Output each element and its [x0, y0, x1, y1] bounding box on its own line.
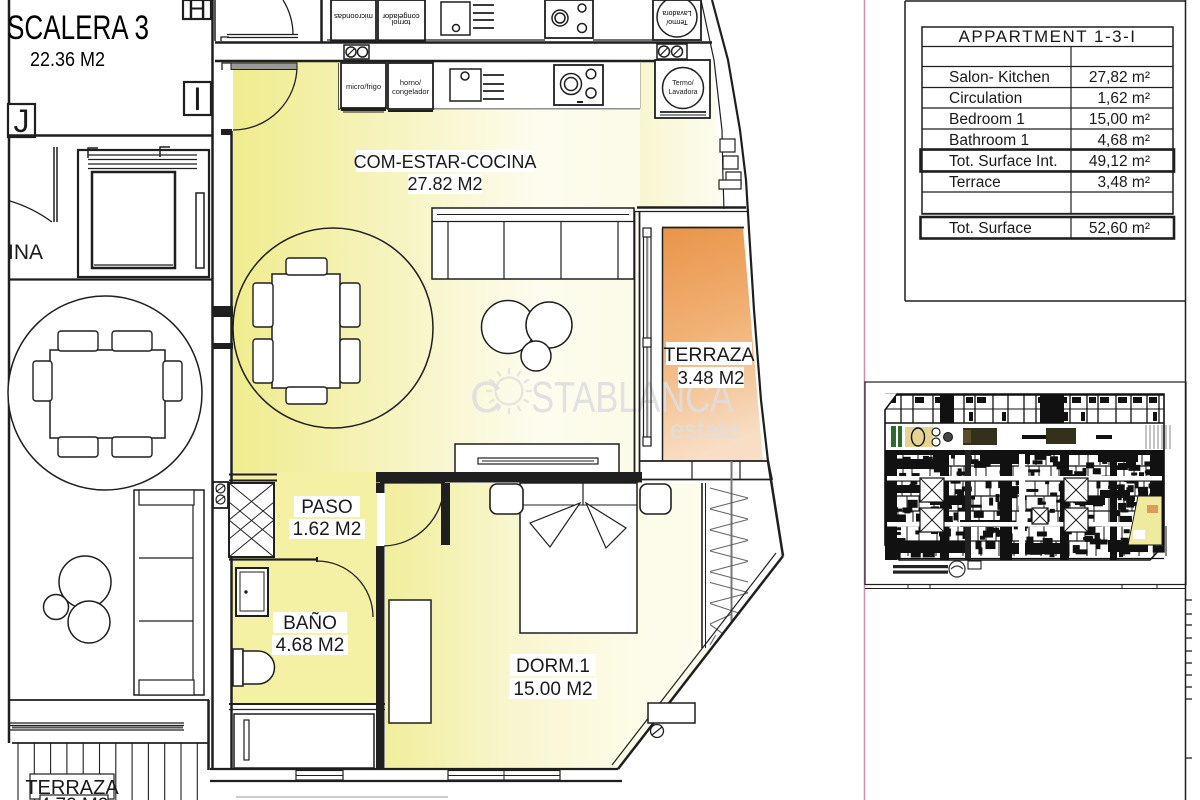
- svg-text:22.36 M2: 22.36 M2: [30, 49, 105, 71]
- svg-text:Termo/: Termo/: [666, 18, 687, 25]
- svg-text:tornol: tornol: [391, 18, 410, 27]
- svg-text:Lavadora: Lavadora: [662, 9, 691, 16]
- svg-text:SCALERA 3: SCALERA 3: [7, 9, 149, 47]
- svg-text:4,68 m²: 4,68 m²: [1097, 132, 1150, 149]
- svg-text:PASO: PASO: [301, 497, 352, 518]
- svg-text:COM-ESTAR-COCINA: COM-ESTAR-COCINA: [354, 152, 537, 172]
- svg-text:micro/frigo: micro/frigo: [346, 82, 381, 91]
- svg-text:TERRAZA: TERRAZA: [663, 344, 754, 366]
- svg-text:4.72 M2: 4.72 M2: [40, 795, 109, 800]
- svg-text:DORM.1: DORM.1: [516, 656, 590, 677]
- svg-text:27.82 M2: 27.82 M2: [407, 174, 482, 194]
- svg-text:3,48 m²: 3,48 m²: [1097, 174, 1150, 191]
- svg-text:estate: estate: [670, 414, 740, 444]
- svg-text:microondas: microondas: [334, 12, 373, 21]
- svg-text:Bathroom 1: Bathroom 1: [949, 132, 1029, 149]
- svg-text:Tot. Surface Int.: Tot. Surface Int.: [949, 153, 1058, 170]
- svg-text:J: J: [14, 103, 30, 139]
- svg-text:Bedroom 1: Bedroom 1: [949, 111, 1025, 128]
- svg-text:49,12 m²: 49,12 m²: [1089, 153, 1150, 170]
- svg-text:1.62 M2: 1.62 M2: [293, 519, 362, 540]
- svg-text:15.00 M2: 15.00 M2: [513, 679, 592, 700]
- svg-text:27,82 m²: 27,82 m²: [1089, 69, 1150, 86]
- svg-text:4.68 M2: 4.68 M2: [276, 635, 345, 656]
- svg-text:15,00 m²: 15,00 m²: [1089, 111, 1150, 128]
- svg-text:3.48 M2: 3.48 M2: [678, 367, 745, 388]
- svg-text:congelador: congelador: [392, 87, 430, 96]
- svg-text:BAÑO: BAÑO: [283, 612, 337, 634]
- svg-text:APPARTMENT 1-3-I: APPARTMENT 1-3-I: [959, 27, 1137, 46]
- svg-text:Lavadora: Lavadora: [668, 89, 697, 96]
- svg-text:Circulation: Circulation: [949, 90, 1022, 107]
- svg-text:52,60 m²: 52,60 m²: [1089, 220, 1150, 237]
- svg-text:Termo/: Termo/: [672, 80, 693, 87]
- svg-text:Terrace: Terrace: [949, 174, 1001, 191]
- svg-text:horno/: horno/: [400, 78, 422, 87]
- svg-text:INA: INA: [8, 241, 43, 264]
- svg-text:H: H: [188, 0, 207, 24]
- svg-text:1,62 m²: 1,62 m²: [1097, 90, 1150, 107]
- svg-text:Salon- Kitchen: Salon- Kitchen: [949, 69, 1050, 86]
- svg-text:I: I: [193, 81, 202, 117]
- svg-text:Tot. Surface: Tot. Surface: [949, 220, 1032, 237]
